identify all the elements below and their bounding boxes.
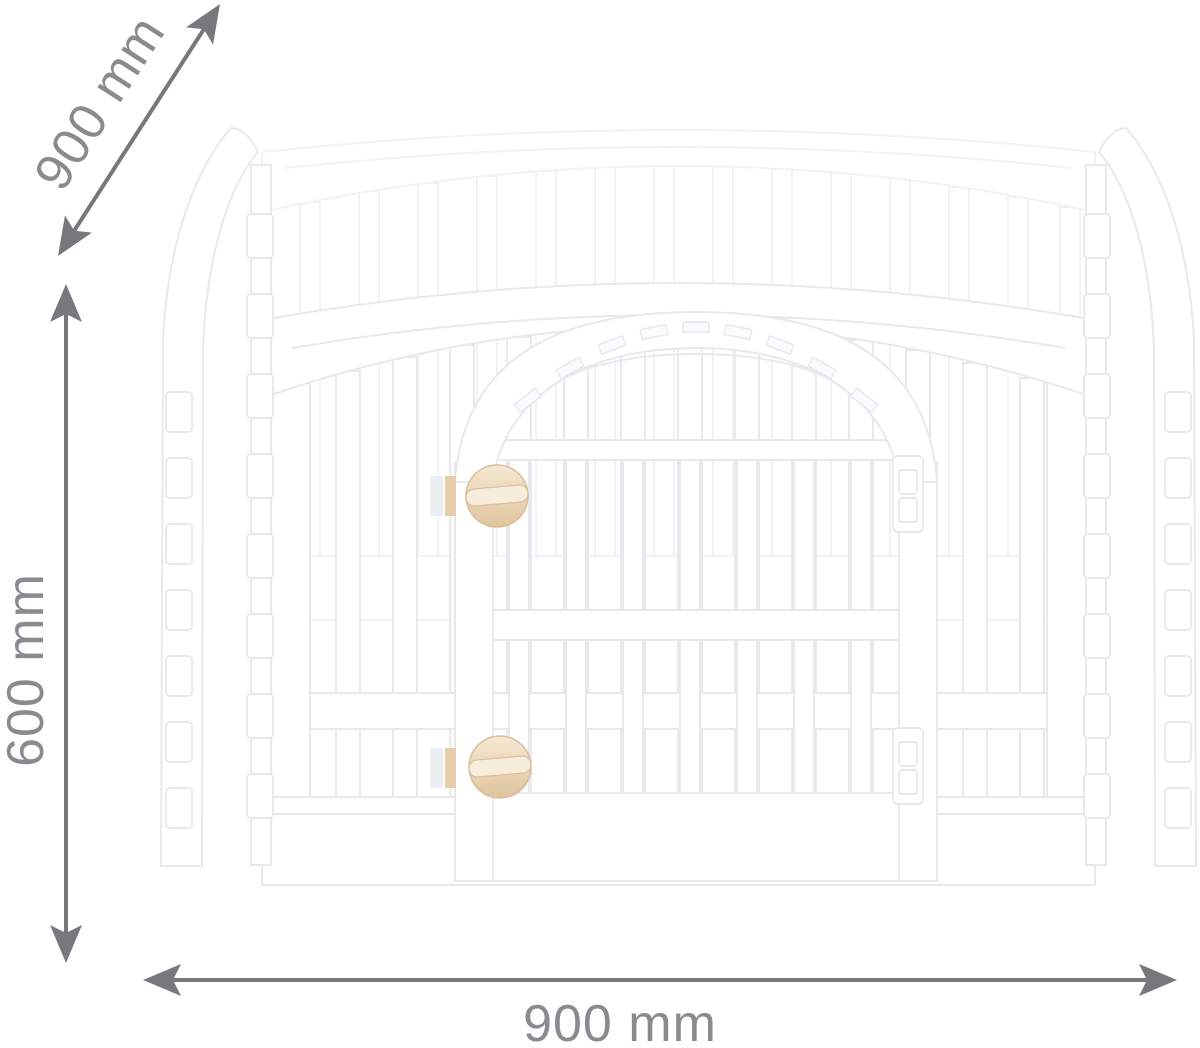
right-corner-hinge-strip bbox=[1086, 165, 1106, 865]
door-latch-knob-top[interactable] bbox=[465, 465, 528, 527]
door-top-rail bbox=[489, 440, 903, 460]
depth-arrowhead-up bbox=[186, 0, 233, 45]
door-hinge-top bbox=[893, 456, 923, 532]
door-latch-catch-bottom bbox=[430, 748, 456, 788]
right-side-panel bbox=[1084, 128, 1196, 866]
depth-arrowhead-down bbox=[45, 215, 92, 264]
width-label: 900 mm bbox=[523, 995, 717, 1048]
left-corner-hinge-strip bbox=[251, 165, 271, 865]
door-bottom-panel bbox=[459, 793, 933, 881]
door-mid-rail bbox=[491, 610, 901, 640]
width-arrow: 900 mm bbox=[143, 964, 1177, 1048]
left-side-panel bbox=[161, 128, 273, 866]
door-hinge-bottom bbox=[893, 728, 923, 804]
figure: 900 mm 600 mm 900 mm bbox=[0, 0, 1200, 1048]
right-side-panel-hinges bbox=[1165, 392, 1191, 828]
height-label: 600 mm bbox=[0, 573, 55, 767]
door-latch-knob-bottom[interactable] bbox=[468, 736, 531, 798]
playpen-dimension-illustration: 900 mm 600 mm 900 mm bbox=[0, 0, 1200, 1048]
door-latch-catch-top bbox=[430, 476, 456, 516]
back-panel-top-rail bbox=[262, 130, 1095, 212]
left-side-panel-hinges bbox=[166, 392, 192, 828]
depth-label: 900 mm bbox=[23, 6, 176, 201]
height-arrow: 600 mm bbox=[0, 284, 82, 963]
